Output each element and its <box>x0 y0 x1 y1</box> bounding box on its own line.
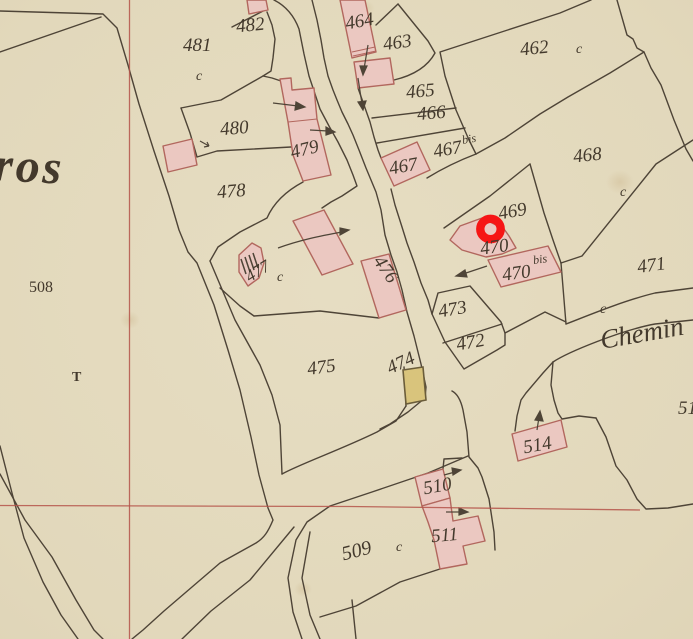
svg-text:51: 51 <box>678 398 693 419</box>
svg-text:478: 478 <box>216 180 247 203</box>
svg-text:470: 470 <box>479 235 511 260</box>
svg-text:480: 480 <box>219 117 250 140</box>
svg-text:482: 482 <box>235 13 266 37</box>
svg-text:c: c <box>620 185 627 200</box>
svg-text:c: c <box>576 42 583 57</box>
svg-text:475: 475 <box>306 355 337 380</box>
svg-text:c: c <box>277 270 284 285</box>
svg-text:471: 471 <box>636 253 667 278</box>
svg-text:508: 508 <box>29 279 53 296</box>
svg-text:ros: ros <box>0 138 66 195</box>
svg-text:511: 511 <box>430 524 459 547</box>
svg-text:c: c <box>196 69 203 84</box>
svg-text:465: 465 <box>405 80 435 103</box>
svg-text:462: 462 <box>519 37 550 61</box>
svg-text:466: 466 <box>416 102 447 125</box>
svg-text:bis: bis <box>532 251 548 267</box>
svg-text:481: 481 <box>183 35 212 56</box>
svg-text:c: c <box>396 540 403 555</box>
svg-text:bis: bis <box>461 131 478 147</box>
svg-text:c: c <box>600 302 607 317</box>
svg-text:T: T <box>72 370 82 385</box>
svg-text:463: 463 <box>382 30 413 55</box>
svg-text:468: 468 <box>572 144 603 168</box>
svg-text:470: 470 <box>501 261 533 286</box>
